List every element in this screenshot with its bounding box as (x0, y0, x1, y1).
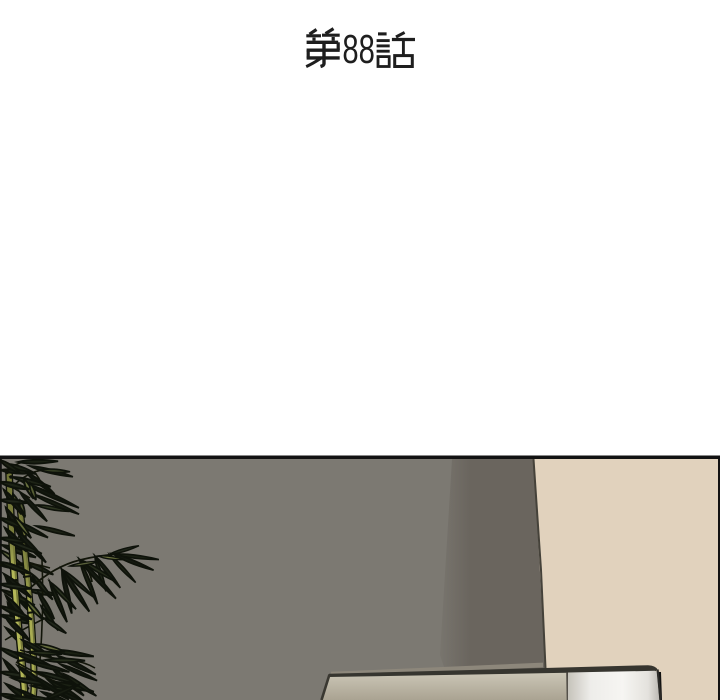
svg-text:88: 88 (342, 26, 375, 72)
